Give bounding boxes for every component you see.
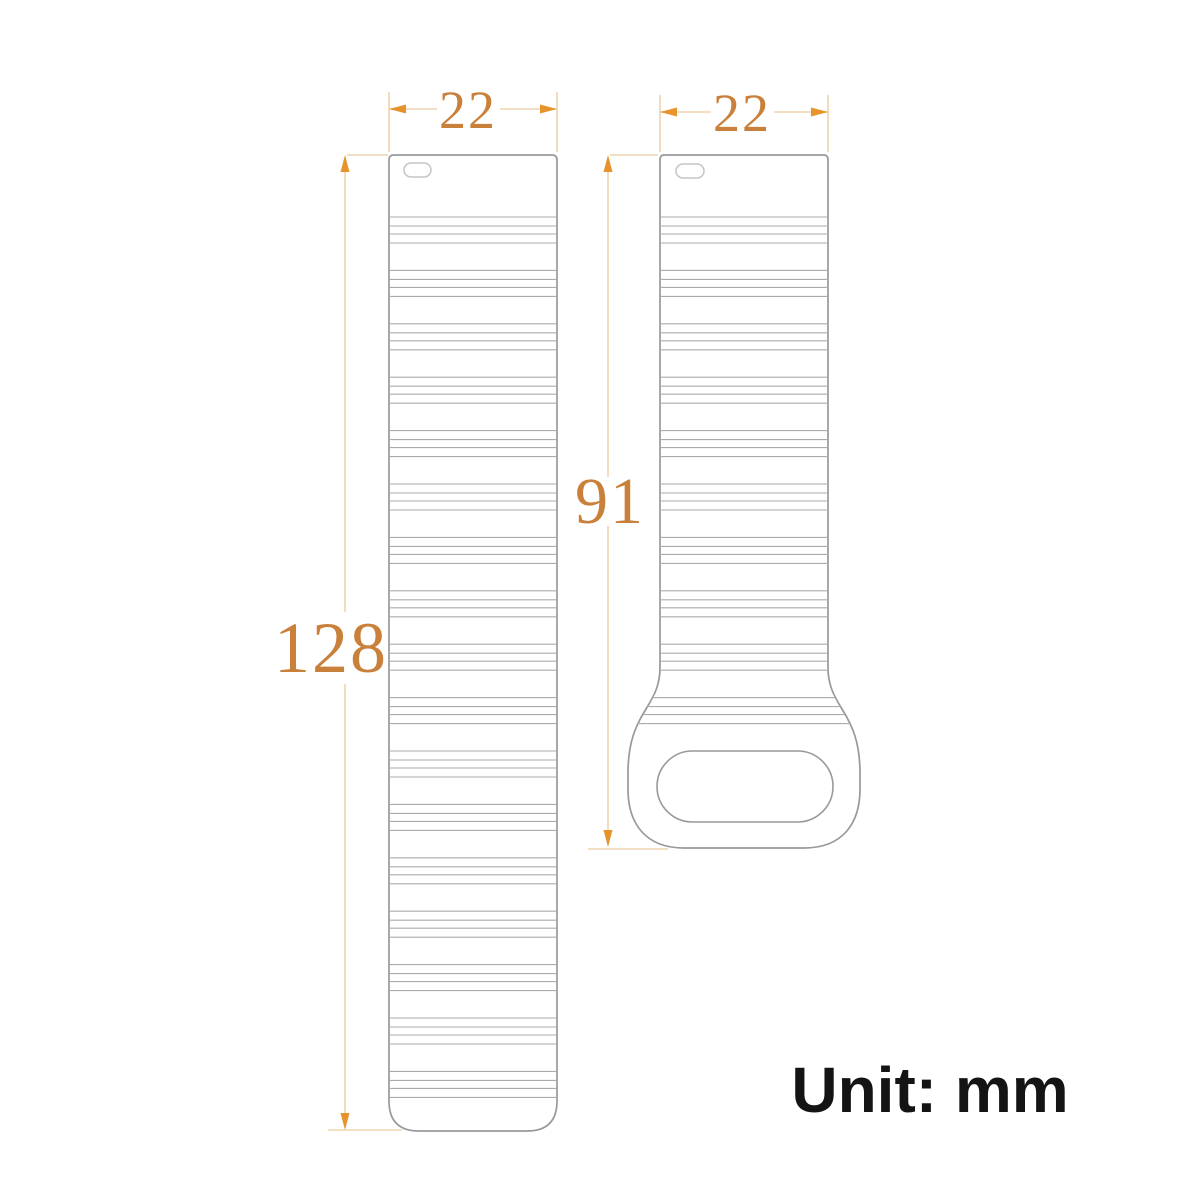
long-strap-outline	[389, 155, 557, 1131]
arrow-right-icon	[811, 108, 828, 117]
dimension-diagram: 22 22 128 91 Unit: mm	[0, 0, 1200, 1200]
unit-note: Unit: mm	[791, 1054, 1068, 1126]
short-strap-buckle-hole	[657, 751, 833, 822]
width-dimension-short-strap: 22	[660, 83, 828, 152]
dimension-label-length-short: 91	[575, 465, 645, 538]
arrow-left-icon	[389, 105, 406, 114]
long-strap-drawing	[388, 155, 558, 1131]
dimension-label-length-long: 128	[274, 608, 388, 688]
short-strap-drawing	[627, 155, 861, 848]
arrow-left-icon	[660, 108, 677, 117]
dimension-label-width-short: 22	[713, 83, 771, 143]
arrow-down-icon	[604, 830, 613, 847]
dimension-label-width-long: 22	[439, 80, 497, 140]
arrow-down-icon	[341, 1113, 350, 1130]
arrow-up-icon	[341, 155, 350, 172]
length-dimension-long-strap: 128	[274, 155, 402, 1130]
arrow-up-icon	[604, 155, 613, 172]
arrow-right-icon	[540, 105, 557, 114]
width-dimension-long-strap: 22	[389, 80, 557, 152]
